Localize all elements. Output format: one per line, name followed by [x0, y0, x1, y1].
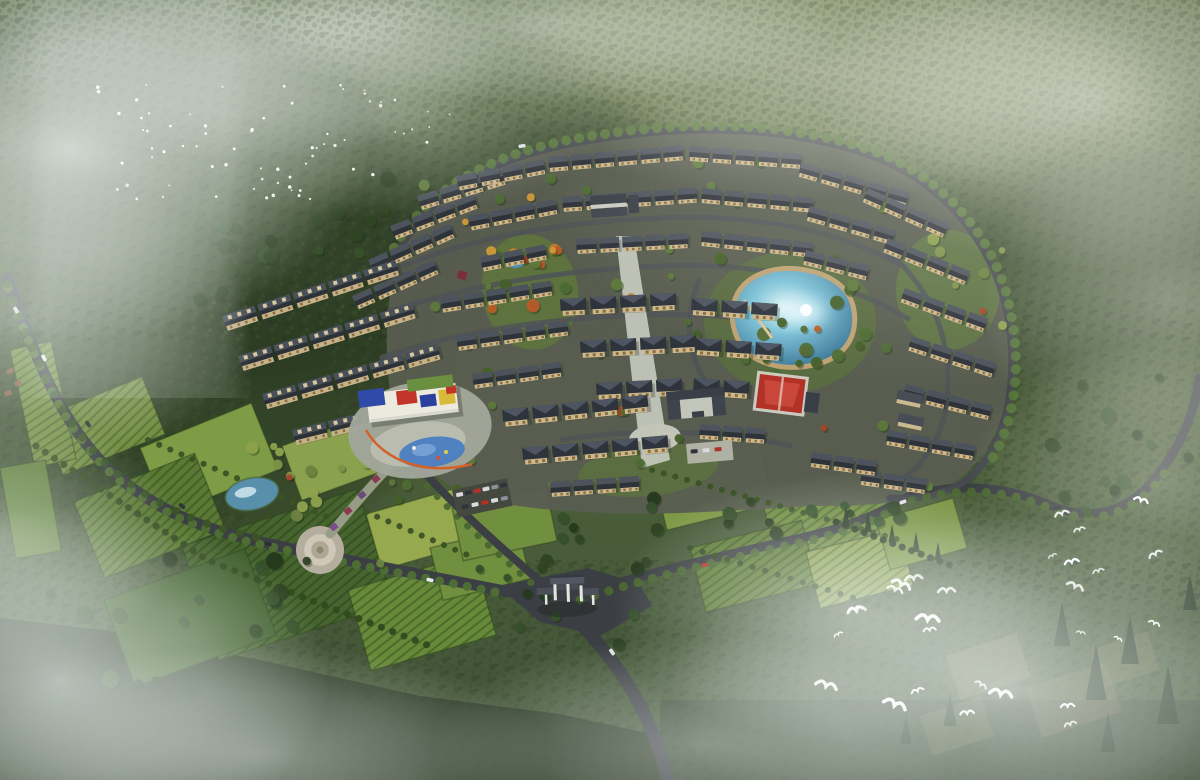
bird	[342, 88, 344, 90]
bird	[364, 90, 366, 92]
house	[619, 476, 642, 492]
house	[592, 398, 622, 418]
bird	[135, 198, 138, 201]
bird	[121, 162, 124, 165]
bird	[379, 104, 382, 107]
bird	[195, 145, 197, 147]
bird	[204, 124, 207, 127]
bird	[380, 101, 382, 103]
house	[580, 340, 609, 359]
bird	[291, 189, 293, 191]
bird	[168, 184, 170, 186]
house	[612, 438, 642, 458]
bird	[253, 188, 255, 190]
scene-canvas	[0, 0, 1200, 780]
house	[722, 426, 745, 442]
house	[550, 480, 573, 496]
bird	[224, 163, 227, 166]
bird	[135, 98, 138, 101]
bird	[364, 93, 366, 95]
house	[810, 452, 834, 470]
bird	[265, 196, 268, 199]
bird	[162, 150, 165, 153]
bird	[426, 141, 429, 144]
bird	[283, 85, 286, 88]
parked-car	[702, 448, 709, 453]
bird	[449, 113, 451, 115]
bird	[215, 195, 218, 198]
house	[596, 382, 625, 401]
house	[522, 446, 552, 466]
bird	[169, 125, 172, 128]
bird	[211, 165, 214, 168]
house	[582, 440, 612, 460]
bird	[323, 143, 325, 145]
bird	[189, 113, 191, 115]
house	[745, 427, 768, 443]
house	[610, 338, 639, 357]
bird	[151, 147, 154, 150]
bird	[305, 163, 307, 165]
bird	[315, 147, 317, 149]
bird	[125, 183, 129, 187]
bird	[146, 130, 149, 133]
bird	[311, 146, 314, 149]
bird	[428, 126, 430, 128]
bird	[276, 167, 280, 171]
bird	[204, 132, 207, 135]
gate-pillar	[592, 595, 595, 605]
circular-plaza	[296, 526, 344, 574]
bird	[151, 156, 153, 158]
bird	[339, 84, 342, 87]
house	[552, 443, 582, 463]
bird	[333, 144, 336, 147]
gate-pillar	[553, 584, 557, 600]
parked-car	[691, 449, 698, 454]
bird	[140, 117, 143, 120]
bird	[352, 168, 355, 171]
bird	[289, 176, 292, 179]
bird	[222, 86, 224, 88]
bird	[148, 112, 150, 114]
bird	[233, 147, 236, 150]
bird	[369, 100, 371, 102]
house	[596, 477, 619, 493]
house	[699, 424, 722, 440]
bird	[326, 133, 328, 135]
bird	[262, 117, 265, 120]
bird	[272, 194, 276, 198]
gate-pillar	[579, 585, 583, 601]
house	[532, 404, 562, 424]
parked-car	[714, 447, 721, 452]
house	[560, 298, 589, 317]
house	[640, 336, 669, 355]
bird	[96, 86, 99, 89]
bird	[277, 182, 279, 184]
house	[723, 380, 753, 399]
bird	[394, 131, 396, 133]
bird	[145, 84, 147, 86]
bird	[261, 178, 263, 180]
bird	[288, 185, 292, 189]
aerial-rendering: Misty mountain villa community — aerial …	[0, 0, 1200, 780]
courtyard-hall	[666, 387, 726, 420]
bird	[97, 90, 101, 94]
bird	[182, 145, 184, 147]
bird	[116, 188, 119, 191]
bird	[403, 132, 405, 134]
bird	[162, 196, 164, 198]
house	[562, 401, 592, 421]
bird	[309, 198, 311, 200]
gate-pillar	[566, 584, 570, 602]
house	[833, 455, 857, 473]
bird	[117, 112, 120, 115]
bird	[142, 129, 144, 131]
bird	[394, 99, 397, 102]
bird	[371, 173, 374, 176]
bird	[260, 167, 262, 169]
bird	[427, 111, 429, 113]
house	[621, 394, 651, 414]
bird	[291, 102, 294, 105]
bird	[344, 139, 346, 141]
bird	[311, 155, 314, 158]
bird	[250, 128, 253, 131]
house	[642, 435, 672, 455]
parking-lot-axis	[686, 440, 734, 464]
house	[502, 407, 532, 427]
gate-pillar	[545, 595, 548, 605]
bird	[298, 194, 301, 197]
house	[573, 479, 596, 495]
bird	[411, 128, 413, 130]
bird	[299, 189, 302, 192]
